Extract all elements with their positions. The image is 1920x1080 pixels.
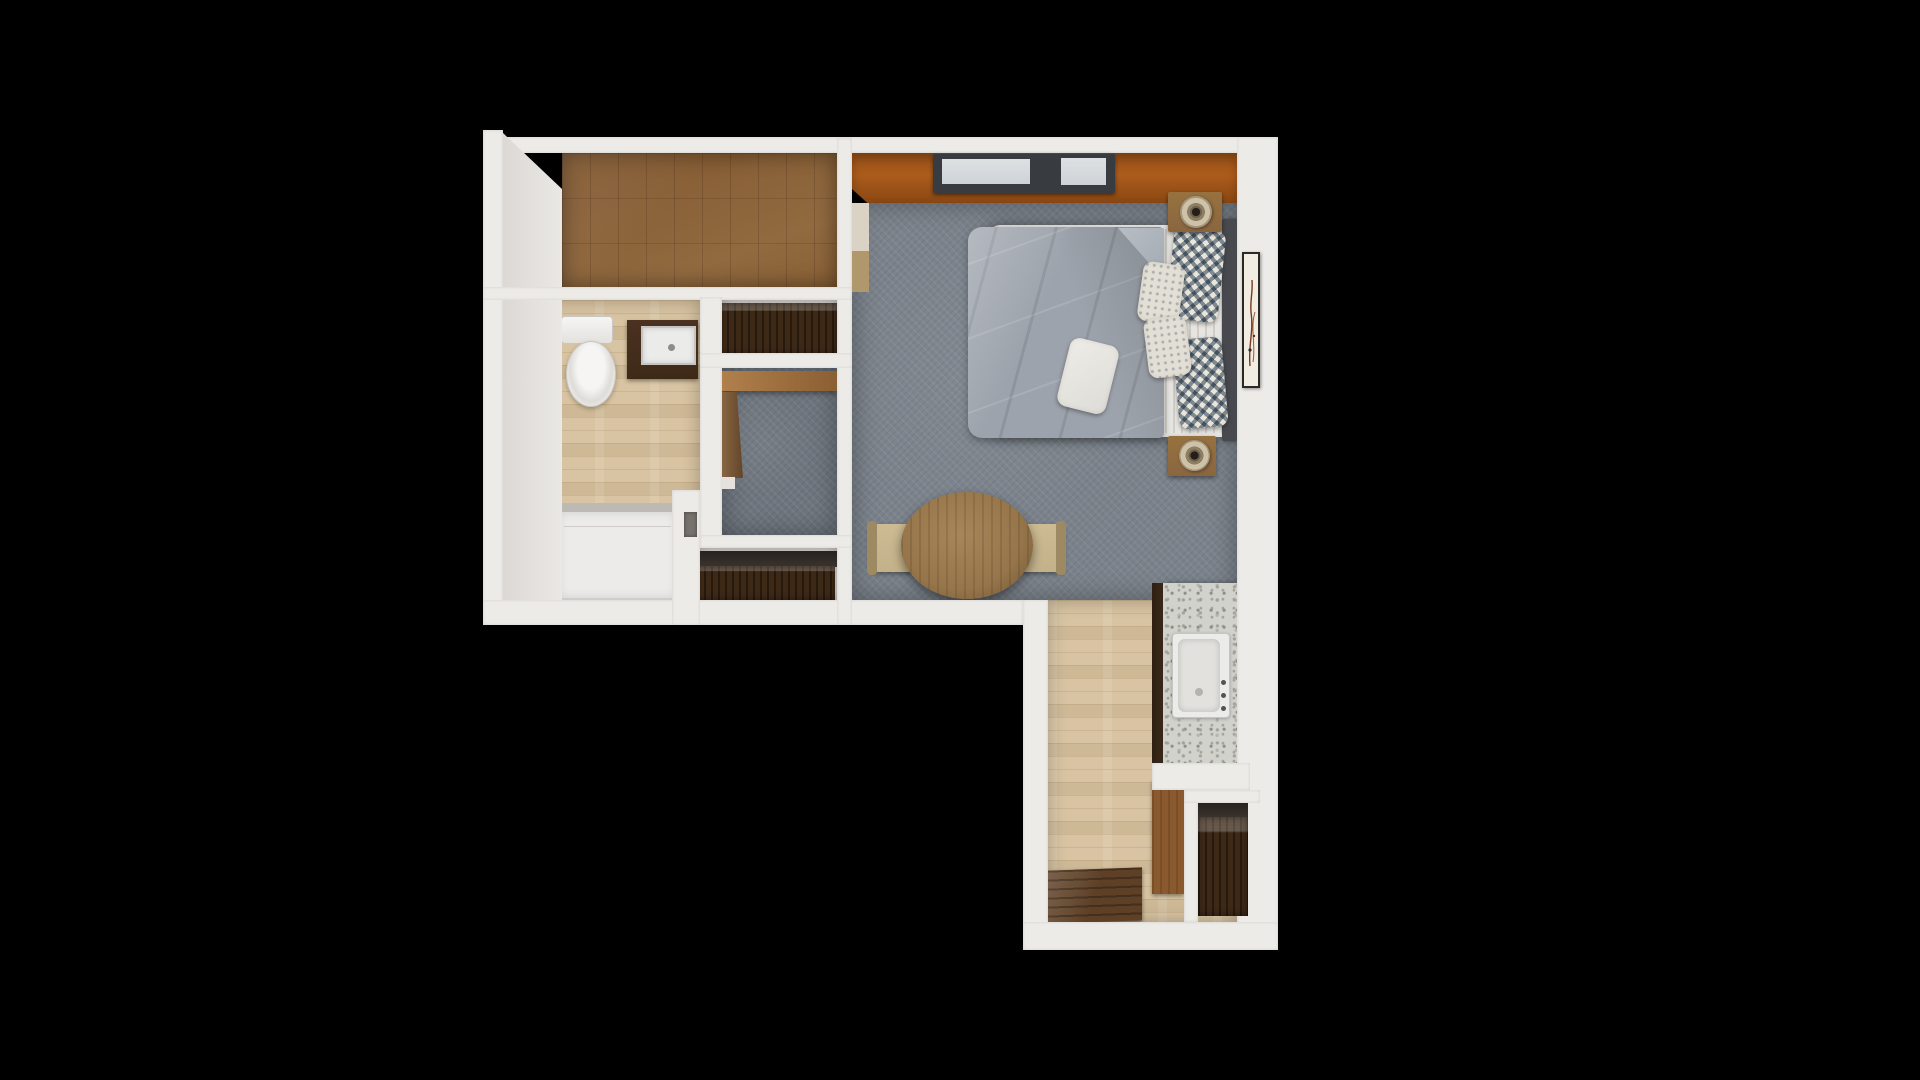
floor-plan-canvas <box>0 0 1920 1080</box>
niche-cabinet[interactable] <box>1198 817 1248 916</box>
built-in-desk[interactable] <box>722 371 837 391</box>
wall-mid-vertical <box>837 138 852 625</box>
lamp-icon-top <box>1180 196 1212 228</box>
sink-drain <box>1195 688 1203 696</box>
wall-below-dresser <box>700 353 852 368</box>
faucet-knob <box>1221 693 1226 698</box>
closet-wardrobe[interactable] <box>697 566 835 600</box>
door-recess[interactable] <box>684 512 697 537</box>
chair-backrest <box>1056 521 1066 575</box>
kitchen-tall-cabinet[interactable] <box>1152 780 1184 894</box>
botanical-print-icon <box>1244 254 1258 386</box>
faucet-knob <box>1221 680 1226 685</box>
wall-closet-bath-divider <box>483 287 852 300</box>
wall-under-counter <box>1152 763 1250 790</box>
faucet-knob <box>1221 706 1226 711</box>
wall-closet-left <box>672 490 700 625</box>
wall-art[interactable] <box>1242 252 1260 388</box>
closet-wardrobe-top <box>697 551 837 567</box>
sink-drain <box>668 344 675 351</box>
niche-cabinet-top <box>1198 803 1248 818</box>
window-glass-left <box>942 159 1030 184</box>
wall-niche-top <box>1184 790 1260 803</box>
wall-below-study <box>700 535 852 548</box>
counter-cabinet-edge <box>1152 583 1163 763</box>
wall-left-face <box>503 133 562 600</box>
toilet-tank[interactable] <box>561 316 613 344</box>
wall-kitchen-left <box>1023 600 1048 950</box>
toilet-bowl[interactable] <box>566 341 616 407</box>
dresser[interactable] <box>720 303 837 354</box>
pillow-leaf-2[interactable] <box>1143 315 1193 380</box>
round-dining-table[interactable] <box>901 492 1033 599</box>
wall-niche-left <box>1184 790 1198 922</box>
shower-tray[interactable] <box>557 503 678 600</box>
bedroom-wardrobe-upper[interactable] <box>852 203 869 251</box>
room-walk-in-closet-floor <box>562 153 837 287</box>
lamp-icon-bottom <box>1179 440 1210 471</box>
entry-door-mat <box>1048 867 1142 923</box>
chair-backrest <box>867 521 877 575</box>
bedroom-window[interactable] <box>933 154 1115 193</box>
wall-top <box>483 137 1278 153</box>
wall-bath-mid-column <box>700 297 722 548</box>
sink-basin <box>1178 639 1220 712</box>
wall-bottom-left <box>483 600 1023 625</box>
window-glass-right <box>1061 158 1106 185</box>
bedroom-wardrobe-lower[interactable] <box>852 251 869 292</box>
kitchen-sink[interactable] <box>1172 633 1230 718</box>
wall-left-outer <box>483 130 503 625</box>
wall-kitchen-bottom <box>1023 922 1278 950</box>
